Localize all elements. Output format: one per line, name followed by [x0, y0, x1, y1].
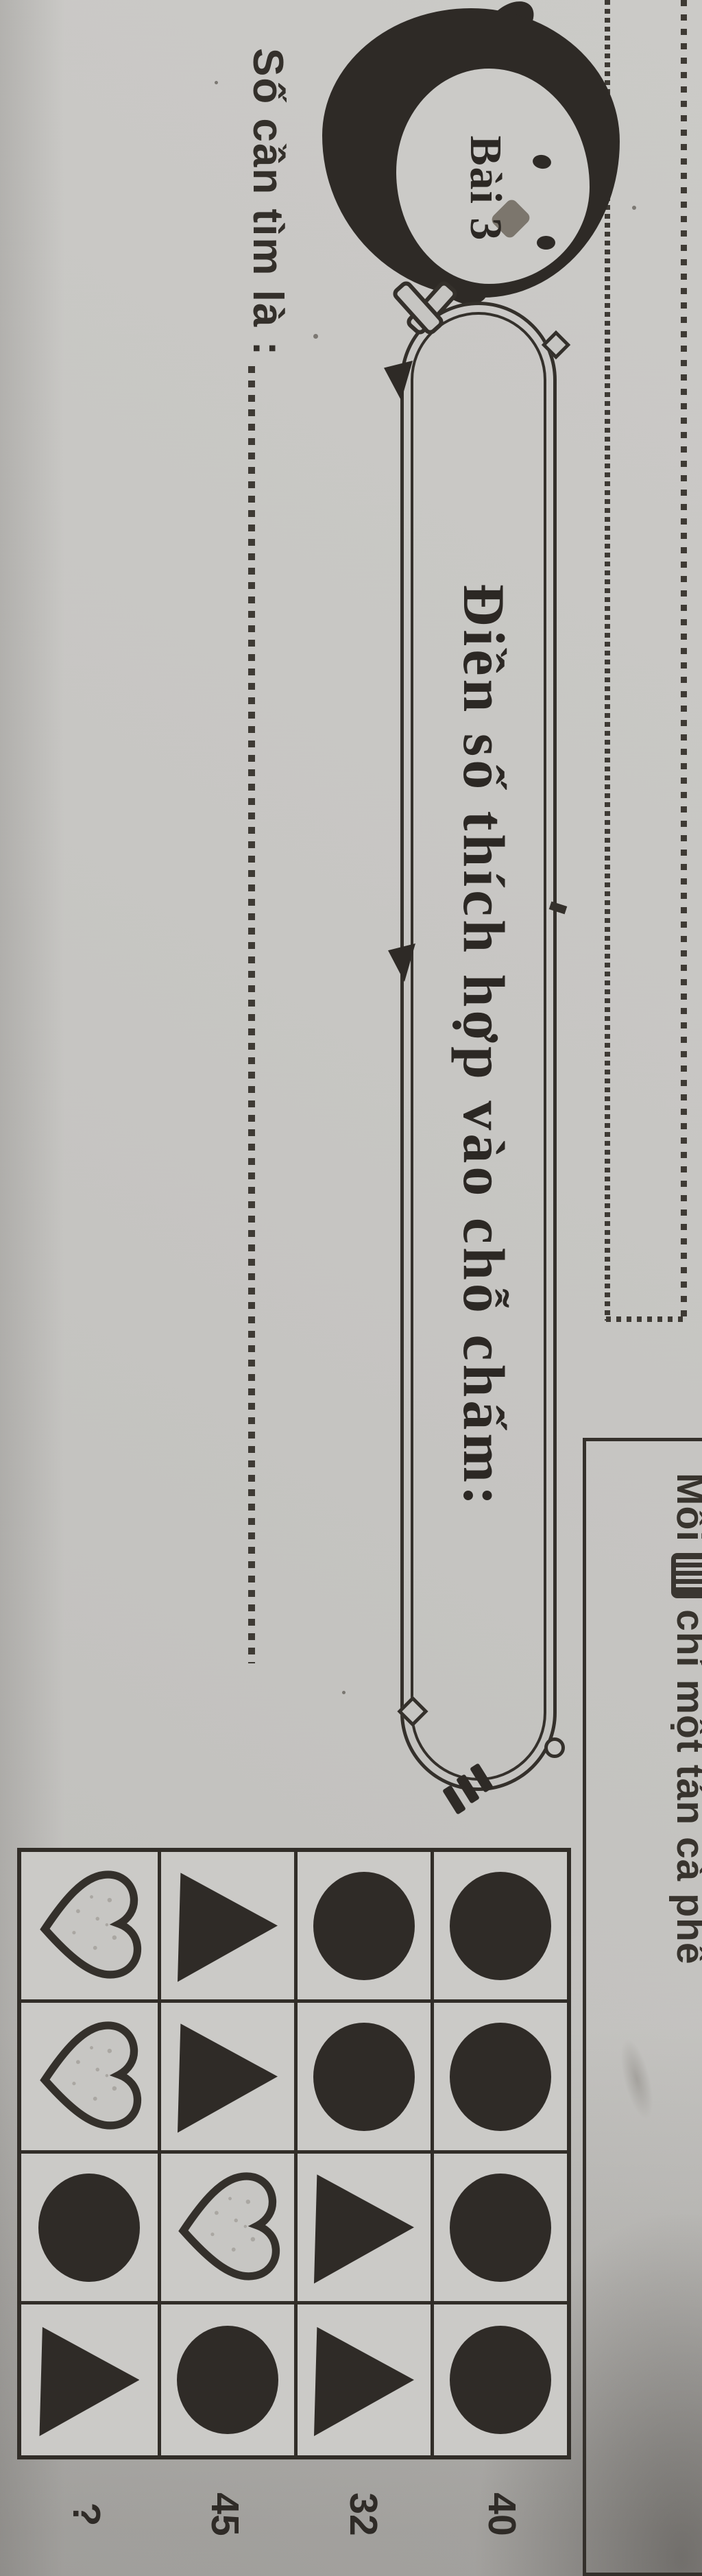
header-text-prefix: Mỗi: [668, 1473, 702, 1542]
heart-shape: [34, 1866, 145, 1984]
circle-shape: [450, 2174, 551, 2282]
grid-cell: [294, 2154, 431, 2304]
header-box: Mỗi chỉ một tán cà phê: [583, 1438, 702, 2576]
dotted-rule-top: [681, 0, 687, 1322]
paper-speck: [342, 1691, 346, 1694]
shape-grid: [17, 1848, 571, 2459]
grid-cell: [294, 1852, 431, 2003]
header-text: Mỗi chỉ một tán cà phê: [668, 1473, 702, 1965]
grid-cell: [21, 2154, 158, 2304]
heart-shape: [173, 2168, 283, 2286]
grid-cell: [294, 2304, 431, 2455]
grid-cell: [158, 1852, 294, 2003]
grid-cell: [431, 2304, 567, 2455]
dotted-rule-connector: [606, 1316, 683, 1322]
paper-speck: [313, 334, 318, 339]
triangle-shape: [178, 2021, 278, 2133]
paper-speck: [632, 206, 636, 210]
worksheet-sheet: Mỗi chỉ một tán cà phê Bài 3: [0, 0, 702, 2576]
grid-cell: [431, 1852, 567, 2003]
answer-line: Số cần tìm là :: [243, 48, 292, 1663]
row-value: 32: [294, 2466, 433, 2563]
row-values: 403245?: [17, 2466, 571, 2563]
grid-cell: [21, 2304, 158, 2455]
triangle-shape: [314, 2171, 414, 2284]
penguin-eye-icon: [537, 236, 555, 250]
circle-shape: [450, 1872, 551, 1980]
circle-shape: [177, 2326, 278, 2434]
pencil-smudge: [607, 2021, 666, 2136]
row-value: 45: [156, 2466, 294, 2563]
answer-dotted-blank: [248, 366, 255, 1663]
grid-cell: [294, 2003, 431, 2154]
grid-cell: [431, 2154, 567, 2304]
circle-shape: [313, 2023, 415, 2131]
instruction-text: Điền số thích hợp vào chỗ chấm:: [400, 302, 557, 1791]
answer-label: Số cần tìm là :: [243, 48, 292, 357]
row-value: ?: [17, 2466, 156, 2563]
triangle-shape: [314, 2324, 414, 2436]
grid-cell: [431, 2003, 567, 2154]
grid-cell: [21, 2003, 158, 2154]
circle-shape: [313, 1872, 415, 1980]
header-text-suffix: chỉ một tán cà phê: [668, 1609, 702, 1964]
row-value: 40: [433, 2466, 571, 2563]
penguin-eye-icon: [532, 154, 553, 170]
grid-cell: [158, 2154, 294, 2304]
grid-cell: [158, 2003, 294, 2154]
grid-cell: [21, 1852, 158, 2003]
circle-shape: [450, 2326, 551, 2434]
stamp-icon: [671, 1553, 702, 1598]
circle-shape: [450, 2023, 551, 2131]
heart-shape: [34, 2017, 145, 2135]
triangle-shape: [40, 2324, 140, 2436]
circle-shape: [39, 2174, 141, 2282]
exercise-number: Bài 3: [459, 93, 511, 284]
triangle-shape: [178, 1870, 278, 1982]
exercise-badge: Bài 3: [322, 8, 620, 298]
paper-speck: [215, 81, 218, 84]
worksheet-photo: Mỗi chỉ một tán cà phê Bài 3: [0, 0, 702, 2576]
instruction-banner: Điền số thích hợp vào chỗ chấm:: [400, 302, 557, 1791]
grid-cell: [158, 2304, 294, 2455]
